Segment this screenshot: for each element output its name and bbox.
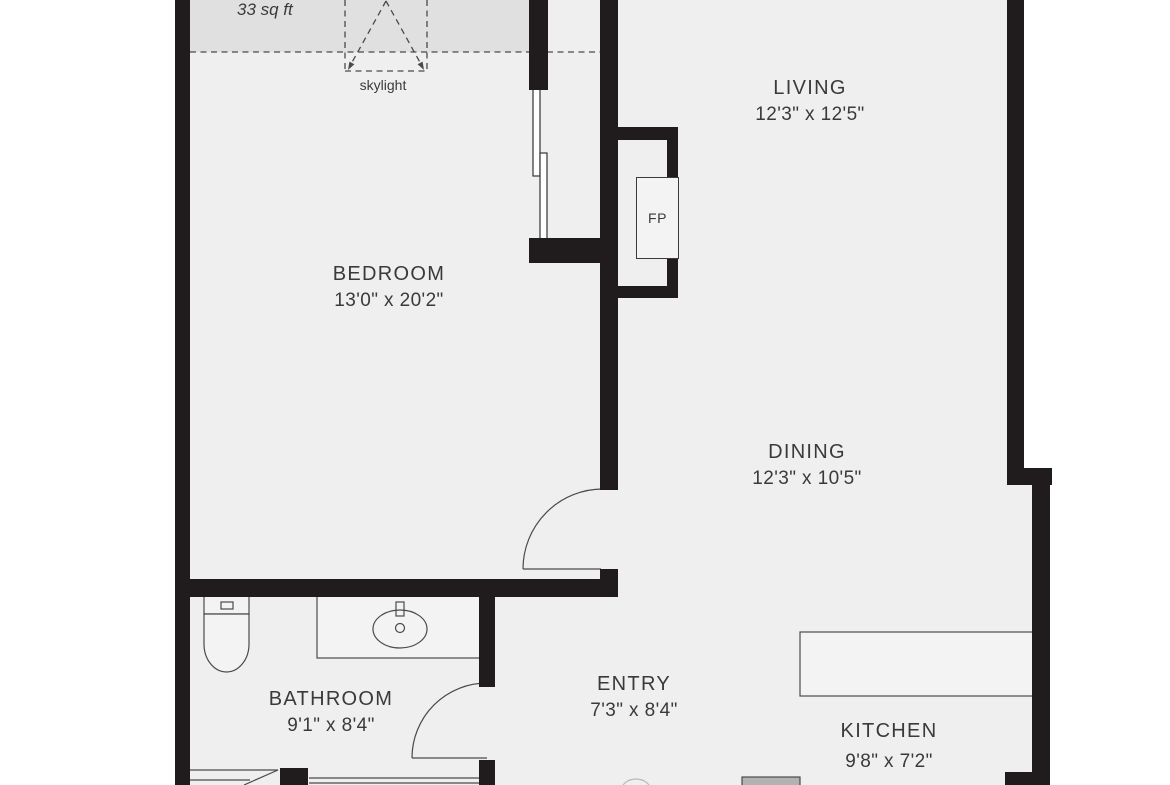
room-label-entry: ENTRY 7'3" x 8'4"	[590, 672, 677, 723]
skylight-label: skylight	[360, 77, 407, 93]
skylight-arrow-left	[348, 62, 354, 70]
toilet	[204, 596, 249, 672]
room-dims: 12'3" x 12'5"	[755, 103, 864, 127]
room-name: ENTRY	[590, 672, 677, 696]
fireplace-box: FP	[636, 177, 679, 259]
room-dims: 9'8" x 7'2"	[841, 750, 938, 774]
room-name: DINING	[752, 440, 861, 464]
wall-window-sill	[529, 238, 603, 263]
room-name: LIVING	[755, 76, 864, 100]
wall-right-upper	[1007, 0, 1024, 478]
bathroom-door-arc	[412, 683, 487, 758]
vanity-edge	[309, 778, 479, 783]
room-label-dining: DINING 12'3" x 10'5"	[752, 440, 861, 491]
room-name: KITCHEN	[841, 719, 938, 743]
bedroom-door-arc	[523, 489, 603, 569]
room-label-kitchen: KITCHEN 9'8" x 7'2"	[841, 719, 938, 774]
skylight-symbol	[345, 0, 427, 71]
skylight-outline	[345, 0, 427, 71]
toilet-bowl	[204, 614, 249, 672]
bathroom-sink	[317, 589, 480, 658]
room-dims: 7'3" x 8'4"	[590, 699, 677, 723]
room-label-living: LIVING 12'3" x 12'5"	[755, 76, 864, 127]
bedroom-door	[523, 489, 603, 569]
wall-entry-stub	[280, 768, 308, 785]
room-label-bathroom: BATHROOM 9'1" x 8'4"	[269, 687, 393, 738]
floorplan: FP 33 sq ft skylight LIVING 12'3" x 12'5…	[0, 0, 1170, 785]
wall-right-lower	[1032, 468, 1050, 785]
window-pane-2	[540, 153, 547, 240]
entry-fixture	[622, 779, 650, 785]
range-appliance	[742, 777, 800, 785]
room-label-bedroom: BEDROOM 13'0" x 20'2"	[333, 262, 445, 313]
room-dims: 13'0" x 20'2"	[333, 289, 445, 313]
wall-bathroom-right	[479, 597, 495, 687]
skylight-area-note: 33 sq ft	[237, 0, 293, 20]
wall-left	[175, 0, 190, 785]
room-dims: 12'3" x 10'5"	[752, 467, 861, 491]
sink-faucet	[396, 602, 404, 616]
wall-bottom-right-corner	[1005, 772, 1035, 785]
kitchen-counter	[800, 632, 1033, 696]
toilet-button	[221, 602, 233, 609]
room-dims: 9'1" x 8'4"	[269, 714, 393, 738]
wall-bedroom-bottom	[175, 579, 618, 597]
skylight-diagonals	[350, 1, 422, 66]
room-name: BATHROOM	[269, 687, 393, 711]
shower	[188, 770, 278, 785]
room-name: BEDROOM	[333, 262, 445, 286]
skylight-arrow-right	[418, 62, 424, 70]
fireplace-label: FP	[648, 210, 667, 226]
window-pane-1	[533, 88, 540, 176]
bathroom-door	[412, 683, 487, 758]
wall-window-top	[529, 0, 548, 90]
wall-bathroom-right-stub	[479, 760, 495, 785]
